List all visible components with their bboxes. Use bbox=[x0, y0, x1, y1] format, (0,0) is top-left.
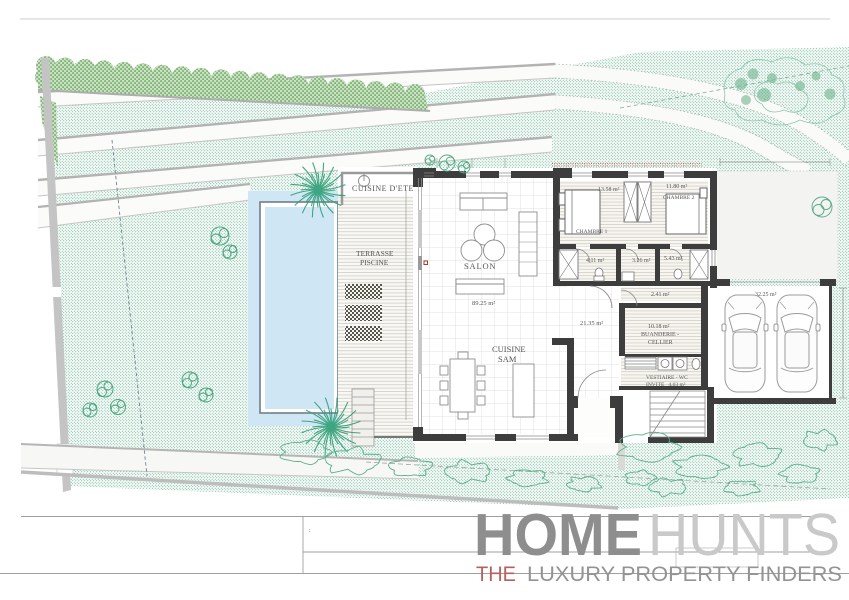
svg-text:13.58 m²: 13.58 m² bbox=[598, 187, 620, 193]
svg-text:10.18 m²: 10.18 m² bbox=[648, 324, 670, 330]
svg-text:11.80 m²: 11.80 m² bbox=[666, 184, 687, 190]
svg-text:89.25 m²: 89.25 m² bbox=[472, 300, 495, 307]
svg-text:VESTIAIRE - WC: VESTIAIRE - WC bbox=[646, 375, 688, 381]
svg-text:INVITE 4.03 m²: INVITE 4.03 m² bbox=[646, 382, 686, 388]
svg-text:3.26 m²: 3.26 m² bbox=[632, 258, 651, 264]
svg-text:SALON: SALON bbox=[464, 261, 496, 271]
svg-text:2.41 m²: 2.41 m² bbox=[651, 292, 670, 298]
svg-text:CUISINE D'ETE: CUISINE D'ETE bbox=[352, 184, 414, 193]
svg-text:21.35 m²: 21.35 m² bbox=[580, 320, 603, 327]
svg-text:BUANDERIE -: BUANDERIE - bbox=[641, 332, 679, 338]
svg-text:LUXURY PROPERTY FINDERS: LUXURY PROPERTY FINDERS bbox=[527, 563, 842, 586]
svg-text:SAM: SAM bbox=[498, 354, 517, 364]
svg-text:THE: THE bbox=[476, 563, 516, 586]
svg-text:HUNTS: HUNTS bbox=[648, 502, 840, 568]
svg-text:TERRASSE: TERRASSE bbox=[356, 249, 394, 258]
svg-text:CELLIER: CELLIER bbox=[648, 340, 673, 346]
svg-text:4.11 m²: 4.11 m² bbox=[586, 258, 604, 264]
svg-text:PISCINE: PISCINE bbox=[360, 258, 389, 267]
svg-text:CHAMBRE 1: CHAMBRE 1 bbox=[576, 229, 608, 235]
svg-text:5.43 m²: 5.43 m² bbox=[664, 256, 683, 262]
svg-text:HOME: HOME bbox=[474, 502, 642, 568]
svg-text:CHAMBRE 2: CHAMBRE 2 bbox=[663, 195, 695, 201]
svg-text:CUISINE: CUISINE bbox=[492, 344, 526, 354]
